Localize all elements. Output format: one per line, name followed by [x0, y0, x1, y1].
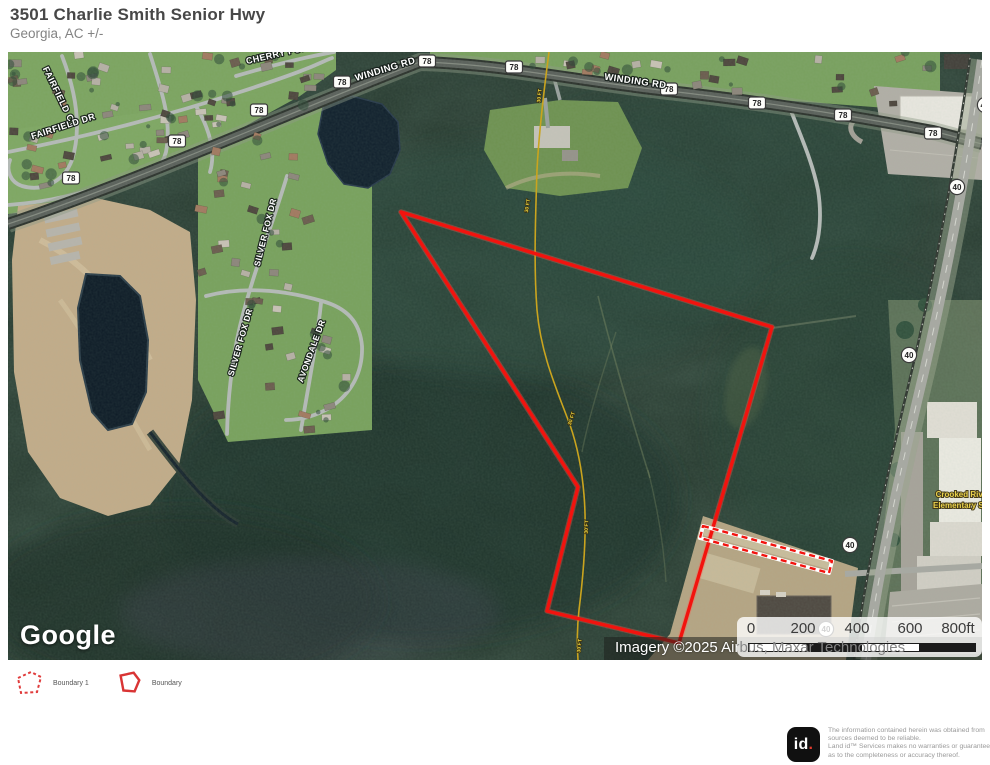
- google-logo[interactable]: Google: [20, 620, 116, 651]
- route-shield-78: 78: [169, 135, 186, 147]
- svg-text:40: 40: [981, 101, 982, 110]
- page-root: { "header": { "title": "3501 Charlie Smi…: [0, 0, 990, 765]
- legend-label: Boundary: [152, 680, 182, 687]
- legend-item-boundary: Boundary: [115, 670, 182, 696]
- svg-text:78: 78: [67, 174, 76, 183]
- route-shield-78: 78: [506, 61, 523, 73]
- route-shield-78: 78: [925, 127, 942, 139]
- pipeline-label: 30 FT: [584, 519, 590, 534]
- disclaimer-text: The information contained herein was obt…: [828, 727, 990, 760]
- poi-school-label: Crooked River: [936, 490, 982, 499]
- disclaimer-line: Land id™ Services makes no warranties or…: [828, 743, 990, 751]
- route-shield-78: 78: [63, 172, 80, 184]
- land-id-logo: id.: [787, 727, 820, 762]
- boundary-solid-icon: [115, 670, 143, 696]
- scale-tick: 400: [844, 620, 869, 637]
- boundary1-dashed-icon: [14, 670, 44, 696]
- disclaimer-line: as to the completeness or accuracy there…: [828, 752, 990, 760]
- land-id-logo-text: id: [794, 736, 809, 754]
- disclaimer-line: sources deemed to be reliable.: [828, 735, 990, 743]
- route-shield-78: 78: [334, 76, 351, 88]
- disclaimer-line: The information contained herein was obt…: [828, 727, 990, 735]
- land-id-logo-dot: .: [809, 736, 814, 754]
- svg-text:40: 40: [905, 351, 914, 360]
- scale-tick: 600: [897, 620, 922, 637]
- route-shield-78: 78: [251, 104, 268, 116]
- svg-text:78: 78: [338, 78, 347, 87]
- route-shield-78: 78: [419, 55, 436, 67]
- legend: Boundary 1 Boundary: [14, 670, 198, 696]
- route-shield-40: 40: [842, 537, 857, 552]
- svg-text:78: 78: [839, 111, 848, 120]
- page-subtitle: Georgia, AC +/-: [10, 26, 103, 41]
- svg-text:40: 40: [953, 183, 962, 192]
- route-shield-78: 78: [749, 97, 766, 109]
- svg-text:78: 78: [423, 57, 432, 66]
- svg-text:78: 78: [510, 63, 519, 72]
- svg-text:40: 40: [846, 541, 855, 550]
- scale-tick: 0: [747, 620, 755, 637]
- route-shield-40: 40: [901, 347, 916, 362]
- scale-tick: 200: [790, 620, 815, 637]
- svg-text:78: 78: [255, 106, 264, 115]
- route-shield-78: 78: [835, 109, 852, 121]
- route-shield-40: 40: [949, 179, 964, 194]
- map-canvas[interactable]: Crooked RiverElementary Sch 30 FT30 FT30…: [8, 52, 982, 660]
- page-title: 3501 Charlie Smith Senior Hwy: [10, 5, 265, 25]
- legend-label: Boundary 1: [53, 680, 89, 687]
- poi-school-label: Elementary Sch: [933, 501, 982, 510]
- svg-text:78: 78: [929, 129, 938, 138]
- legend-item-boundary-1: Boundary 1: [14, 670, 89, 696]
- svg-text:78: 78: [173, 137, 182, 146]
- scale-tick: 800ft: [941, 620, 974, 637]
- svg-text:78: 78: [753, 99, 762, 108]
- footer-disclaimer-block: id. The information contained herein was…: [787, 727, 990, 762]
